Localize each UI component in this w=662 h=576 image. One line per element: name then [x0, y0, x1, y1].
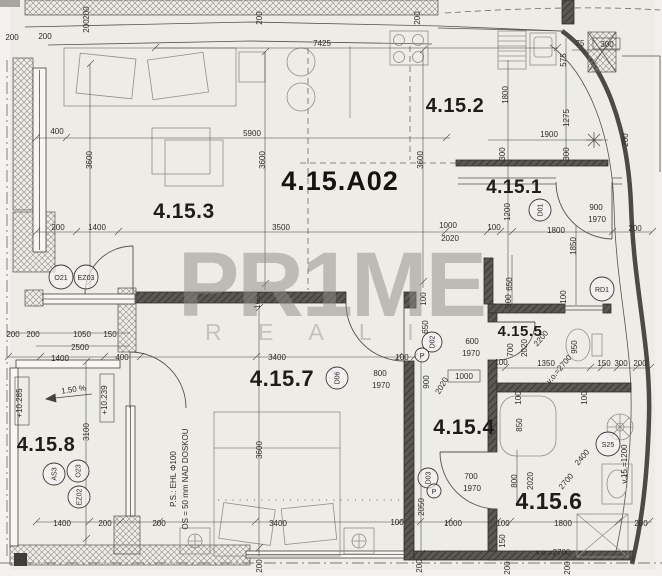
- wall: [25, 290, 43, 306]
- dim-text: 950: [570, 340, 579, 354]
- dim-text: 200: [152, 519, 166, 528]
- dim-text: 850: [515, 418, 524, 432]
- dim-text: 300: [498, 147, 507, 161]
- wall: [456, 160, 608, 166]
- dim-text: 300: [614, 359, 628, 368]
- dim-text: 300: [600, 40, 614, 49]
- dim-text: 1400: [53, 519, 71, 528]
- dim-text: 200: [503, 561, 512, 575]
- door-tag: P: [432, 489, 437, 496]
- dim-text: 200: [413, 11, 422, 25]
- dim-text: 1400: [51, 354, 69, 363]
- dim-text: 200: [82, 6, 91, 20]
- dim-text: 200: [6, 330, 20, 339]
- dim-text: 100: [494, 358, 508, 367]
- dim-text: 1970: [462, 349, 480, 358]
- room-label-4-15-3: 4.15.3: [153, 200, 214, 223]
- wall: [562, 0, 574, 24]
- wall: [484, 258, 493, 304]
- dim-text: 900: [422, 375, 431, 389]
- dim-text: 700: [506, 343, 515, 357]
- dim-text: 1970: [463, 484, 481, 493]
- wall: [497, 383, 631, 392]
- dim-text: 575: [559, 53, 568, 67]
- pier: [14, 553, 27, 566]
- dim-text: 100: [395, 353, 409, 362]
- dim-text: 2050: [417, 498, 426, 516]
- door-tag: RD1: [595, 287, 609, 294]
- wall: [488, 304, 565, 313]
- dim-text: 900: [589, 203, 603, 212]
- dim-text: 1200: [503, 203, 512, 221]
- door-tag: P: [420, 353, 425, 360]
- dim-text: 100: [487, 223, 501, 232]
- dim-text: 100: [559, 290, 568, 304]
- dim-text: 100: [496, 519, 510, 528]
- dim-text: 1050: [73, 330, 91, 339]
- dim-text: 3100: [82, 423, 91, 441]
- dim-text: 200: [26, 330, 40, 339]
- watermark: PR1ME R E A L I: [178, 234, 485, 345]
- dim-text: 150: [103, 330, 117, 339]
- dim-text: 100: [514, 391, 523, 405]
- dim-text: v.15.=1200: [620, 444, 629, 484]
- wall: [603, 304, 611, 313]
- dim-text: 1800: [554, 519, 572, 528]
- wall: [404, 361, 414, 560]
- wall: [13, 58, 33, 210]
- dim-text: 3500: [272, 223, 290, 232]
- dim-text: 2500: [71, 343, 89, 352]
- dim-text: 200: [633, 359, 647, 368]
- dim-text: 1000: [444, 519, 462, 528]
- dim-text: 200: [255, 559, 264, 573]
- dim-text: 600: [465, 337, 479, 346]
- right-margin: [655, 0, 662, 576]
- dim-text: 3600: [416, 151, 425, 169]
- dim-text: 200: [621, 133, 630, 147]
- wall: [414, 551, 633, 560]
- dim-text: 7425: [313, 39, 331, 48]
- dim-text: 200: [628, 224, 642, 233]
- tag: EZ02: [77, 489, 84, 506]
- dim-text: 2020: [520, 339, 529, 357]
- dim-text: 1275: [562, 109, 571, 127]
- room-label-4-15-6: 4.15.6: [516, 488, 583, 514]
- left-margin: [0, 0, 10, 576]
- window-tag: EZ03: [78, 275, 95, 282]
- dim-text: 200: [98, 519, 112, 528]
- dim-text: 150: [597, 359, 611, 368]
- dim-text: 300: [562, 147, 571, 161]
- window-tag: O21: [54, 275, 67, 282]
- dim-text: 1800: [501, 86, 510, 104]
- dim-text: 200: [563, 561, 572, 575]
- dim-text: 800: [510, 474, 519, 488]
- door-tag: D03: [426, 471, 433, 484]
- dim-text: 5900: [243, 129, 261, 138]
- dim-text: 1970: [588, 215, 606, 224]
- dim-text: 1850: [569, 237, 578, 255]
- floor-plan-drawing: 7425 200 200 200 200 200 200 5900 400 36…: [0, 0, 662, 576]
- dim-text: v.o.=2700: [536, 548, 571, 557]
- room-label-4-15-2: 4.15.2: [426, 95, 485, 117]
- dim-text: 1900: [540, 130, 558, 139]
- dim-text: 1000: [455, 372, 473, 381]
- drain-note: P.S.: EHL Φ100: [169, 451, 178, 507]
- scan-corner: [0, 0, 20, 7]
- floor-plan: 7425 200 200 200 200 200 200 5900 400 36…: [0, 0, 662, 576]
- dim-text: 1800: [547, 226, 565, 235]
- dim-text: 400: [115, 353, 129, 362]
- room-label-4-15-1: 4.15.1: [486, 177, 542, 198]
- dim-text: 200: [38, 32, 52, 41]
- dim-text: 150: [498, 534, 507, 548]
- dim-text: 200: [415, 559, 424, 573]
- room-label-4-15-5: 4.15.5: [498, 323, 543, 340]
- door-tag: D01: [538, 203, 545, 216]
- dim-text: 3600: [258, 151, 267, 169]
- level-note: +10.239: [100, 385, 109, 415]
- dim-text: 1400: [88, 223, 106, 232]
- watermark-subtitle: R E A L I: [205, 319, 429, 345]
- drain-note: OS = 50 mm NAD DOSKOU: [181, 428, 190, 529]
- dim-text: 700: [464, 472, 478, 481]
- dim-text: 1350: [537, 359, 555, 368]
- dim-text: 200: [51, 223, 65, 232]
- dim-text: 3400: [269, 519, 287, 528]
- dim-text: 100: [390, 518, 404, 527]
- door-tag: D06: [335, 371, 342, 384]
- dim-text: 1000: [439, 221, 457, 230]
- dim-text: 200: [255, 11, 264, 25]
- dim-text: 650: [505, 277, 514, 291]
- dim-text: 3600: [85, 151, 94, 169]
- tag: O23: [76, 464, 83, 477]
- tag: AS3: [52, 467, 59, 480]
- dim-text: 1970: [372, 381, 390, 390]
- dim-text: 300: [504, 294, 513, 308]
- wall: [488, 313, 497, 322]
- wall: [114, 516, 140, 554]
- level-note: +10.285: [15, 388, 24, 418]
- dim-text: 3600: [255, 441, 264, 459]
- dim-text: 200: [5, 33, 19, 42]
- dim-text: 200: [82, 19, 91, 33]
- dim-text: 3400: [268, 353, 286, 362]
- room-label-4-15-8: 4.15.8: [17, 434, 76, 456]
- room-label-4-15-7: 4.15.7: [250, 366, 314, 391]
- room-label-4-15-4: 4.15.4: [433, 416, 494, 439]
- dim-text: 200: [634, 519, 648, 528]
- tag: S25: [602, 442, 615, 449]
- dim-text: 100: [580, 391, 589, 405]
- dim-text: 800: [373, 369, 387, 378]
- door-tag: D02: [430, 335, 437, 348]
- apartment-label: 4.15.A02: [281, 166, 399, 196]
- dim-text: 75: [576, 39, 585, 48]
- dim-text: 400: [50, 127, 64, 136]
